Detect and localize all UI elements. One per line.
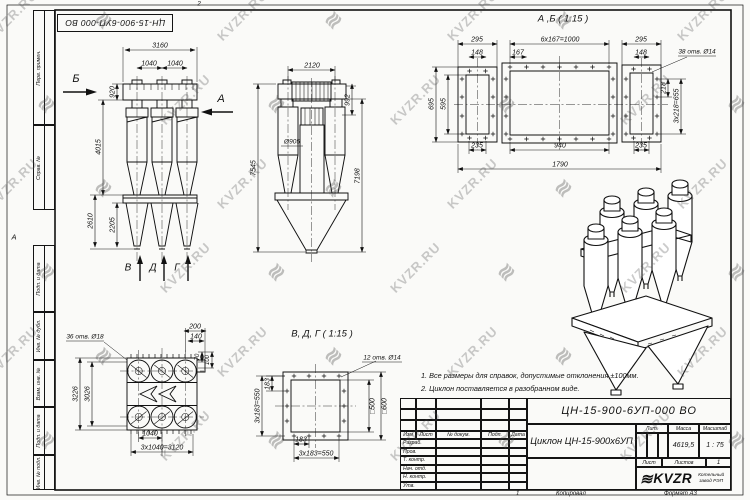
margin-box-label: Подп. и дата (36, 262, 42, 295)
tb-doc-cell (436, 448, 481, 457)
tb-change-cell (481, 420, 509, 431)
tb-change-cell (509, 398, 527, 409)
tb-change-cell (481, 398, 509, 409)
titleblock-lit-cell-2 (647, 433, 658, 458)
titleblock-mass-value: 4619,5 (668, 433, 699, 458)
margin-box-label: Справ. № (36, 155, 42, 179)
tb-change-cell (400, 420, 416, 431)
tb-date-cell (509, 465, 527, 474)
tb-row-label: Т. контр. (400, 456, 436, 465)
titleblock-sheets-value: 1 (706, 458, 731, 467)
titleblock-lit-header: Лит. (636, 424, 668, 433)
tb-sign-cell (481, 456, 509, 465)
tb-sign-cell (481, 439, 509, 448)
margin-box-label: Инв. № дубл. (36, 320, 42, 353)
titleblock-lit-cell-3 (658, 433, 668, 458)
tb-row-label: Нач. отд. (400, 465, 436, 474)
titleblock-spare-cell (527, 458, 636, 490)
tb-date-cell (509, 439, 527, 448)
bolt-hole-marks (131, 65, 659, 438)
titleblock-name-cell: Циклон ЦН-15-900х6УП (527, 424, 636, 458)
top-designation-text: ЦН-15-900-6УП-000 ВО (65, 18, 165, 28)
tb-change-cell (481, 409, 509, 420)
titleblock-scale-value: 1 : 75 (699, 433, 731, 458)
tb-doc-cell (436, 456, 481, 465)
tb-change-cell (416, 398, 436, 409)
margin-box: Инв. № дубл. (33, 312, 55, 360)
tb-change-cell (416, 420, 436, 431)
tb-header-cell: Изм (400, 431, 416, 439)
tb-change-cell (509, 409, 527, 420)
titleblock-name: Циклон ЦН-15-900х6УП (530, 436, 632, 446)
titleblock-lit-cell-1 (636, 433, 647, 458)
tb-date-cell (509, 482, 527, 491)
titleblock-mass-header: Масса (668, 424, 699, 433)
tb-change-cell (436, 398, 481, 409)
titleblock-scale-header: Масштаб (699, 424, 731, 433)
tb-row-label: Пров. (400, 448, 436, 457)
footer-format-label: Формат А3 (664, 491, 697, 497)
tb-change-cell (509, 420, 527, 431)
tb-doc-cell (436, 482, 481, 491)
tb-change-cell (416, 409, 436, 420)
footer-sheet-mark: 1 (516, 491, 519, 497)
tb-doc-cell (436, 473, 481, 482)
margin-box: Перв. примен. (33, 10, 55, 125)
tb-date-cell (509, 448, 527, 457)
tb-row-label: Утв. (400, 482, 436, 491)
tb-change-cell (400, 398, 416, 409)
margin-box-label: Перв. примен. (36, 50, 42, 85)
margin-box-label: Подп. и дата (36, 414, 42, 447)
tb-header-cell: Лист (416, 431, 436, 439)
tb-sign-cell (481, 465, 509, 474)
tb-header-cell: Подп. (481, 431, 509, 439)
drawing-sheet: .fr{fill:none;stroke:#111;stroke-width:1… (0, 0, 750, 500)
kvzr-logo-text: KVZR (653, 471, 692, 486)
tb-date-cell (509, 456, 527, 465)
tb-change-cell (400, 409, 416, 420)
top-designation-box: ЦН-15-900-6УП-000 ВО (57, 14, 173, 32)
margin-box: Подп. и дата (33, 245, 55, 312)
margin-box-label: Взам. инв. № (36, 367, 42, 400)
titleblock-designation: ЦН-15-900-6УП-000 ВО (561, 405, 696, 417)
margin-box: Справ. № (33, 125, 55, 210)
margin-box-label: Инв. № подл. (36, 456, 42, 489)
tb-sign-cell (481, 448, 509, 457)
tb-sign-cell (481, 473, 509, 482)
tb-change-cell (436, 409, 481, 420)
margin-box: Взам. инв. № (33, 360, 55, 407)
footer-copied-label: Копировал (556, 491, 586, 497)
titleblock-sheets-label: Листов (662, 458, 706, 467)
isometric-view (572, 180, 712, 395)
margin-box: Подп. и дата (33, 407, 55, 455)
tb-doc-cell (436, 465, 481, 474)
tb-row-label: Разраб. (400, 439, 436, 448)
titleblock-designation-cell: ЦН-15-900-6УП-000 ВО (527, 398, 731, 424)
tb-header-cell: Дата (509, 431, 527, 439)
tb-change-cell (436, 420, 481, 431)
titleblock-sheet-label: Лист (636, 458, 662, 467)
margin-box: Инв. № подл. (33, 455, 55, 490)
tb-header-cell: № докум. (436, 431, 481, 439)
note-line-2: 2. Циклон поставляется в разобранном вид… (421, 384, 580, 393)
company-name: Котельный завод РЭП (695, 473, 727, 484)
tb-date-cell (509, 473, 527, 482)
tb-row-label: Н. контр. (400, 473, 436, 482)
tb-sign-cell (481, 482, 509, 491)
tb-doc-cell (436, 439, 481, 448)
titleblock-logo-box: ≋ KVZR Котельный завод РЭП (636, 467, 731, 490)
note-line-1: 1. Все размеры для справок, допустимые о… (421, 371, 639, 380)
kvzr-logo-icon: ≋ (640, 470, 653, 488)
